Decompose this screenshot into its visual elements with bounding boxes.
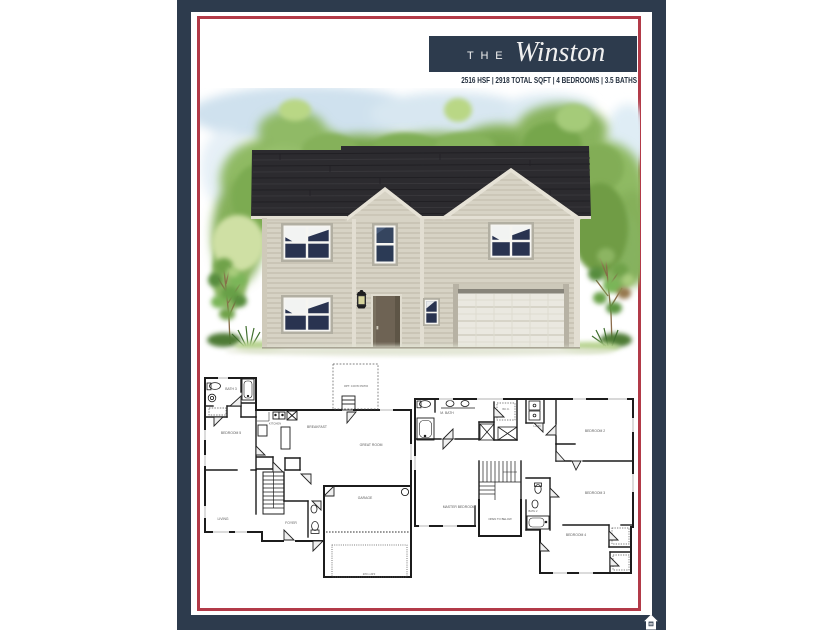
svg-text:M. BATH: M. BATH — [440, 411, 454, 415]
svg-text:FOYER: FOYER — [285, 521, 297, 525]
svg-text:W.I.C.: W.I.C. — [502, 407, 510, 411]
svg-text:GREAT ROOM: GREAT ROOM — [360, 443, 383, 447]
svg-text:BATH 2: BATH 2 — [529, 509, 538, 513]
svg-text:LAUN: LAUN — [534, 424, 541, 428]
svg-text:20'0 x 20'0: 20'0 x 20'0 — [363, 572, 376, 576]
svg-text:BEDROOM 4: BEDROOM 4 — [566, 533, 586, 537]
svg-text:OPEN TO BELOW: OPEN TO BELOW — [488, 517, 512, 521]
svg-text:BREAKFAST: BREAKFAST — [307, 425, 327, 429]
svg-text:BEDROOM 5: BEDROOM 5 — [221, 431, 241, 435]
svg-text:KITCHEN: KITCHEN — [269, 422, 281, 426]
svg-text:GARAGE: GARAGE — [358, 496, 373, 500]
svg-text:OPT. COV'D PATIO: OPT. COV'D PATIO — [344, 384, 369, 388]
svg-text:LIVING: LIVING — [217, 517, 228, 521]
svg-text:BEDROOM 3: BEDROOM 3 — [585, 491, 605, 495]
svg-text:MASTER BEDROOM: MASTER BEDROOM — [443, 505, 476, 509]
svg-text:BATH 3: BATH 3 — [225, 387, 237, 391]
svg-text:BEDROOM 2: BEDROOM 2 — [585, 429, 605, 433]
